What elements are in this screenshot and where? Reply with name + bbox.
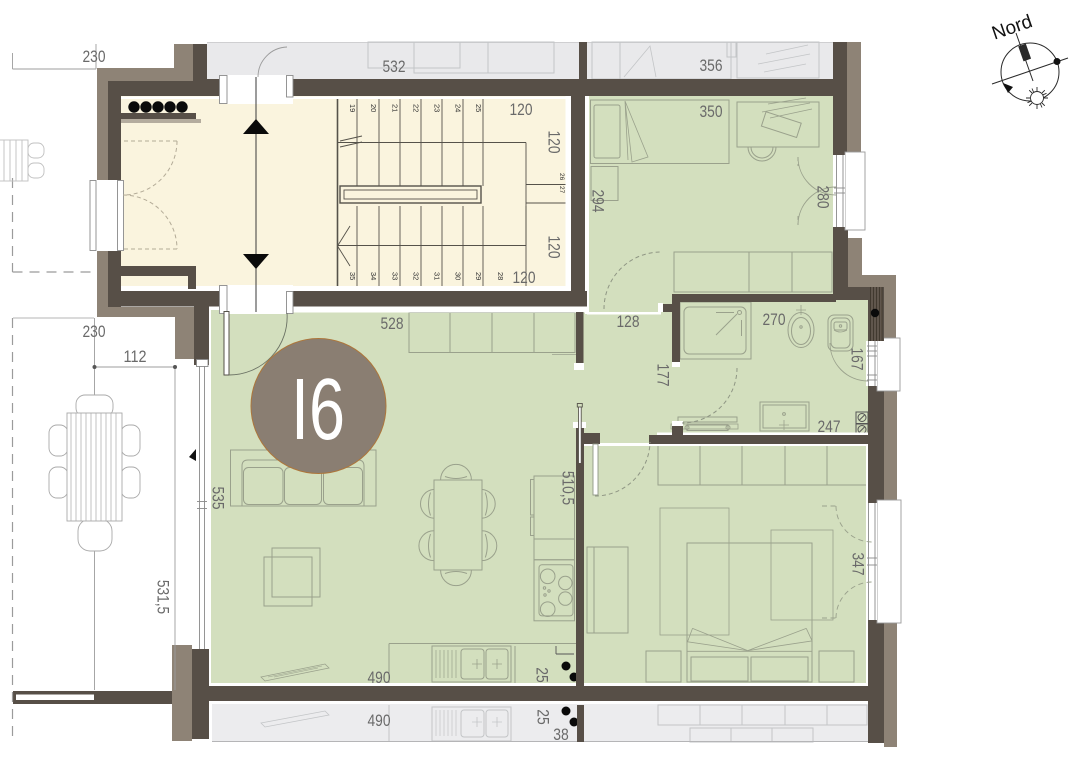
svg-text:347: 347 bbox=[849, 553, 868, 576]
svg-text:177: 177 bbox=[654, 364, 673, 387]
svg-text:490: 490 bbox=[368, 668, 391, 687]
svg-text:120: 120 bbox=[545, 236, 564, 259]
svg-text:120: 120 bbox=[513, 268, 536, 287]
svg-text:528: 528 bbox=[381, 314, 404, 333]
svg-text:29: 29 bbox=[474, 272, 483, 280]
svg-text:490: 490 bbox=[368, 711, 391, 730]
svg-text:120: 120 bbox=[510, 100, 533, 119]
svg-text:33: 33 bbox=[391, 272, 400, 280]
svg-text:38: 38 bbox=[553, 725, 569, 744]
svg-text:230: 230 bbox=[83, 47, 106, 66]
svg-text:535: 535 bbox=[209, 487, 228, 510]
svg-text:30: 30 bbox=[454, 272, 463, 280]
svg-text:112: 112 bbox=[124, 347, 147, 366]
svg-text:31: 31 bbox=[433, 272, 442, 280]
svg-text:294: 294 bbox=[589, 190, 608, 213]
svg-text:120: 120 bbox=[545, 131, 564, 154]
svg-text:510,5: 510,5 bbox=[559, 471, 578, 505]
svg-text:26: 26 bbox=[558, 173, 565, 181]
svg-text:167: 167 bbox=[848, 348, 867, 371]
svg-text:22: 22 bbox=[412, 104, 421, 112]
svg-text:28: 28 bbox=[496, 272, 505, 280]
svg-text:356: 356 bbox=[700, 56, 723, 75]
svg-text:531,5: 531,5 bbox=[154, 580, 173, 614]
svg-text:270: 270 bbox=[763, 310, 786, 329]
svg-text:32: 32 bbox=[412, 272, 421, 280]
svg-text:24: 24 bbox=[454, 104, 463, 112]
svg-text:532: 532 bbox=[383, 57, 406, 76]
svg-text:350: 350 bbox=[700, 102, 723, 121]
svg-text:230: 230 bbox=[83, 322, 106, 341]
svg-text:247: 247 bbox=[818, 417, 841, 436]
svg-text:I6: I6 bbox=[291, 361, 345, 458]
svg-text:280: 280 bbox=[814, 186, 833, 209]
svg-text:19: 19 bbox=[348, 104, 357, 112]
svg-text:20: 20 bbox=[369, 104, 378, 112]
svg-text:35: 35 bbox=[348, 272, 357, 280]
svg-text:34: 34 bbox=[369, 272, 378, 280]
svg-text:27: 27 bbox=[558, 186, 565, 194]
svg-text:128: 128 bbox=[617, 312, 640, 331]
svg-text:25: 25 bbox=[474, 104, 483, 112]
svg-text:25: 25 bbox=[534, 709, 553, 725]
svg-text:23: 23 bbox=[433, 104, 442, 112]
svg-text:25: 25 bbox=[533, 667, 552, 683]
svg-text:21: 21 bbox=[391, 104, 400, 112]
